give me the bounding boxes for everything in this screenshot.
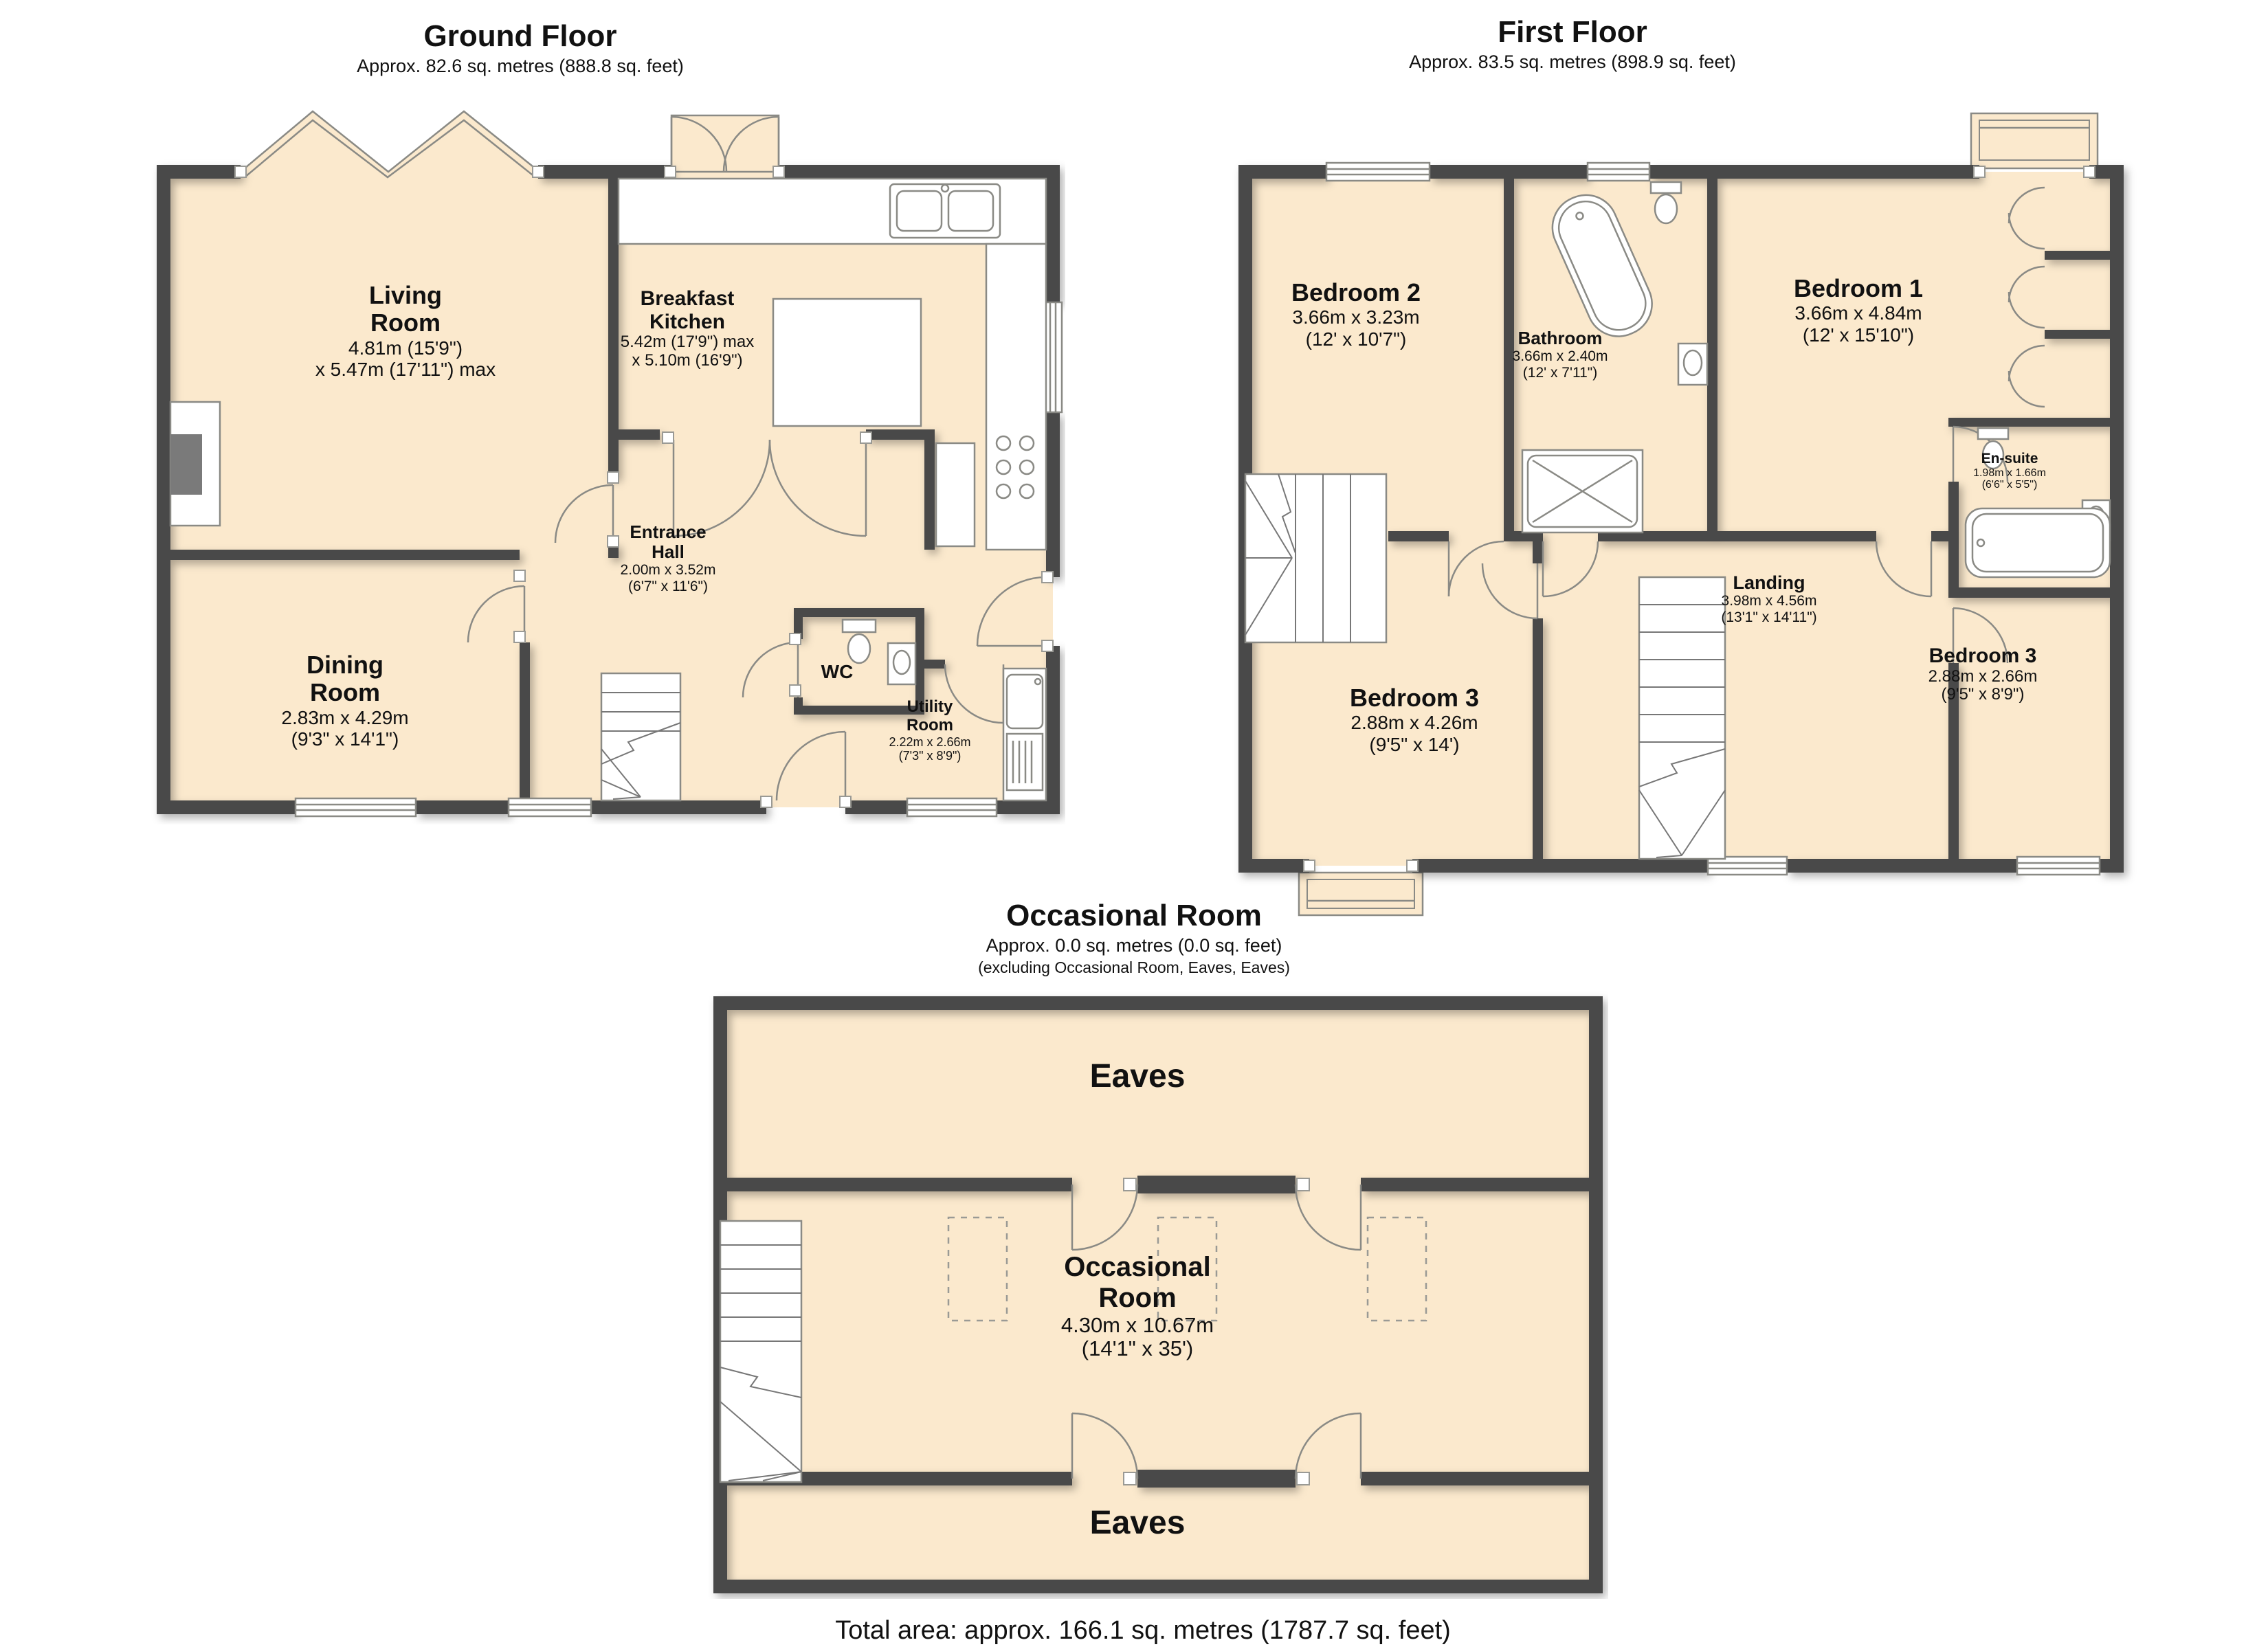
room-label-ensuite: En-suite 1.98m x 1.66m (6'6" x 5'5")	[1941, 451, 2078, 491]
room-label-eaves-top: Eaves	[1000, 1058, 1275, 1095]
room-label-living: Living Room 4.81m (15'9") x 5.47m (17'11…	[268, 282, 543, 380]
room-label-occasional: Occasional Room 4.30m x 10.67m (14'1" x …	[983, 1252, 1292, 1361]
ground-floor-title: Ground Floor	[211, 19, 830, 54]
fireplace-icon	[170, 402, 220, 526]
utility-fixtures-icon	[1003, 669, 1046, 800]
room-label-dining: Dining Room 2.83m x 4.29m (9'3" x 14'1")	[242, 651, 448, 750]
room-label-bedroom2: Bedroom 2 3.66m x 3.23m (12' x 10'7")	[1236, 279, 1476, 350]
room-label-bedroom3-right: Bedroom 3 2.88m x 2.66m (9'5" x 8'9")	[1880, 644, 2086, 704]
room-label-utility: Utility Room 2.22m x 2.66m (7'3" x 8'9")	[861, 698, 999, 763]
occasional-area-note: (excluding Occasional Room, Eaves, Eaves…	[790, 958, 1478, 978]
first-floor-area: Approx. 83.5 sq. metres (898.9 sq. feet)	[1263, 50, 1882, 74]
room-label-landing: Landing 3.98m x 4.56m (13'1" x 14'11")	[1673, 572, 1865, 625]
ground-floor-header: Ground Floor Approx. 82.6 sq. metres (88…	[211, 19, 830, 78]
room-label-bedroom1: Bedroom 1 3.66m x 4.84m (12' x 15'10")	[1738, 275, 1979, 346]
room-label-bedroom3-left: Bedroom 3 2.88m x 4.26m (9'5" x 14')	[1294, 684, 1535, 755]
room-label-entrance-hall: Entrance Hall 2.00m x 3.52m (6'7" x 11'6…	[586, 522, 751, 594]
occasional-area: Approx. 0.0 sq. metres (0.0 sq. feet)	[790, 934, 1478, 958]
first-floor-title: First Floor	[1263, 15, 1882, 50]
ground-floor-area: Approx. 82.6 sq. metres (888.8 sq. feet)	[211, 54, 830, 78]
first-floor-plan	[1230, 96, 2151, 921]
room-label-kitchen: Breakfast Kitchen 5.42m (17'9") max x 5.…	[584, 287, 790, 370]
ground-stairs-icon	[601, 673, 680, 800]
attic-stairs-icon	[1245, 474, 1386, 642]
first-floor-header: First Floor Approx. 83.5 sq. metres (898…	[1263, 15, 1882, 74]
occasional-stairs-icon	[720, 1221, 801, 1482]
floorplan-page: Ground Floor Approx. 82.6 sq. metres (88…	[0, 0, 2268, 1649]
total-area-text: Total area: approx. 166.1 sq. metres (17…	[731, 1616, 1555, 1646]
room-label-bathroom: Bathroom 3.66m x 2.40m (12' x 7'11")	[1474, 328, 1646, 381]
room-label-wc: WC	[810, 661, 865, 682]
room-label-eaves-bottom: Eaves	[1000, 1505, 1275, 1542]
